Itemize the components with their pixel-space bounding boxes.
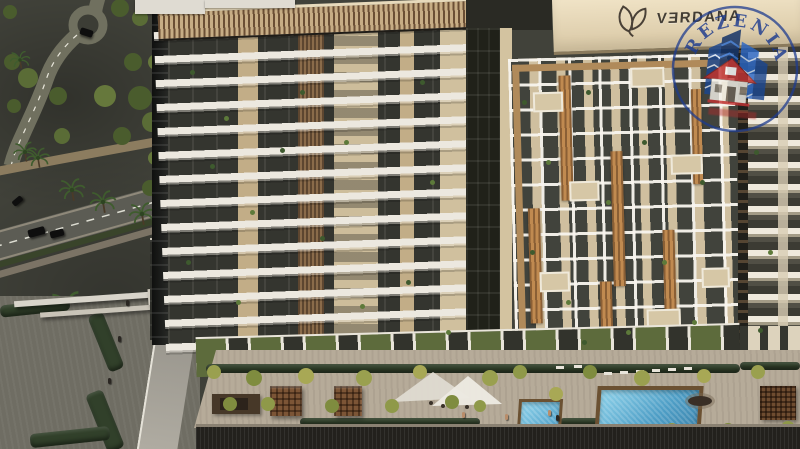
watermark-subtext-bar	[708, 107, 756, 119]
fire-table	[220, 398, 248, 410]
podium-slat-wall	[196, 424, 800, 449]
swimmer	[548, 410, 551, 416]
pergola-structure	[334, 386, 362, 416]
car	[27, 226, 45, 238]
pergola-structure	[270, 386, 302, 416]
facade-wall-patch	[569, 181, 600, 202]
facade-wall-patch	[533, 92, 564, 113]
swimmer	[556, 415, 559, 421]
facade-wall-patch	[540, 271, 571, 292]
facade-wall-patch	[670, 154, 703, 175]
pedestrian	[126, 300, 129, 306]
swimmer	[462, 412, 465, 418]
car	[49, 228, 64, 238]
facade-wall-patch	[701, 267, 730, 288]
tower-gap-shadow	[466, 0, 552, 30]
curtain-wall-recess	[466, 28, 500, 358]
outdoor-dining-table	[688, 396, 712, 406]
car	[11, 195, 23, 207]
rooftop-structure	[205, 0, 295, 8]
rooftop-structure	[135, 0, 205, 14]
seating-platform	[212, 394, 260, 414]
left-tower-balcony-slabs	[154, 20, 478, 362]
timber-lattice-structure	[760, 386, 796, 420]
rezenia-watermark: REZENIA	[647, 0, 800, 157]
deck-hedge-row	[740, 362, 800, 370]
shade-sails	[385, 365, 515, 417]
car	[79, 27, 94, 38]
property-render-photo: VƎRDANA REZENIA	[0, 0, 800, 449]
pedestrian	[118, 336, 121, 342]
pedestrian	[108, 378, 111, 384]
verdana-leaf-icon	[612, 1, 651, 40]
swimmer	[505, 414, 508, 420]
